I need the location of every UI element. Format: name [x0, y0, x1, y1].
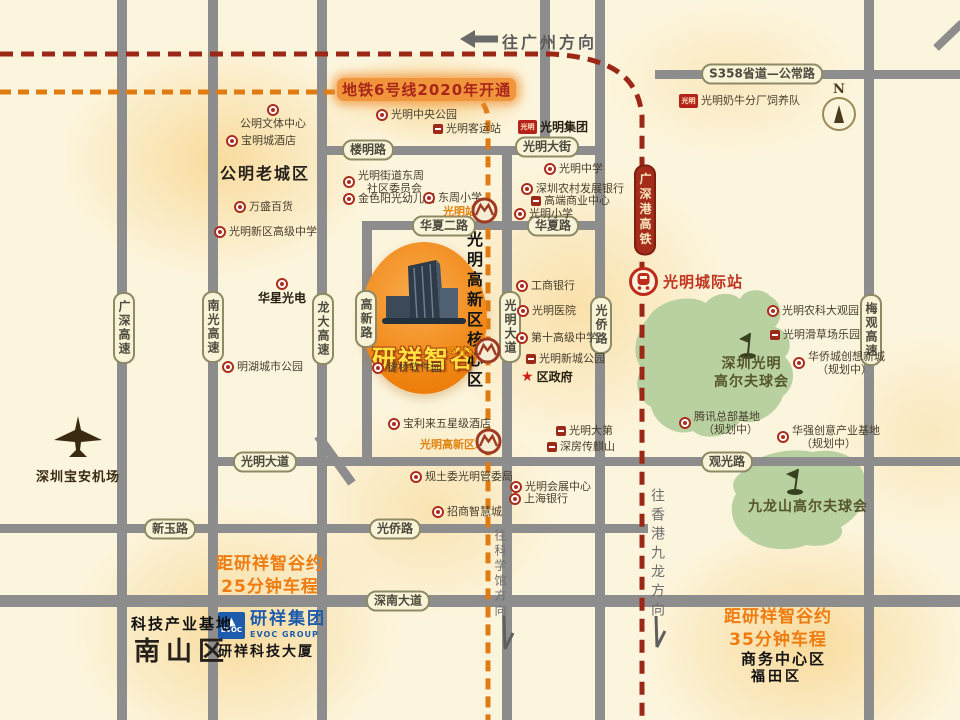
- road-label: 高新路: [355, 290, 377, 348]
- poi-label: 工商银行: [531, 279, 575, 292]
- golf-club-jiulongshan-label: 九龙山高尔夫球会: [748, 499, 868, 517]
- poi-marker: 光明光明集团: [518, 120, 588, 134]
- poi-label: 腾讯总部基地（规划中）: [694, 410, 760, 436]
- map-canvas: 研祥智谷 光明高新区核心区 地铁6号线2020年开通 光明城际站 深圳光明 高尔…: [0, 0, 960, 720]
- map-text: 往广州方向: [502, 29, 597, 53]
- road-label: 光侨路: [590, 296, 612, 354]
- poi-label: 光明农科大观园: [782, 304, 859, 317]
- poi-dot-icon: [214, 226, 226, 238]
- poi-marker: 规土委光明管委局: [410, 470, 513, 483]
- poi-dot-icon: [234, 201, 246, 213]
- road-label: 光明大道: [499, 291, 521, 363]
- poi-square-icon: [526, 354, 536, 364]
- poi-label: 宝明城酒店: [241, 134, 296, 147]
- map-text: 公明老城区: [220, 160, 310, 184]
- compass-needle-icon: [834, 105, 844, 123]
- poi-marker: 光明大第: [556, 424, 613, 437]
- road-label: 新玉路: [144, 519, 196, 540]
- poi-label: 键桥软件园: [387, 361, 442, 374]
- poi-marker: 键桥软件园: [372, 361, 442, 374]
- evoc-tower-label: 研祥科技大厦: [218, 641, 314, 661]
- poi-dot-icon: [423, 192, 435, 204]
- map-text: 福田区: [751, 666, 802, 686]
- metro-station-icon: [474, 337, 501, 364]
- evoc-group-logo-block: ▲ EVOC 研祥集团 EVOC GROUP: [218, 611, 326, 639]
- poi-marker: 光明滑草场乐园: [770, 328, 860, 341]
- poi-marker: 招商智慧城: [432, 505, 502, 518]
- poi-marker: ★区政府: [521, 370, 573, 384]
- metro-line6-note: 地铁6号线2020年开通: [337, 78, 516, 101]
- poi-dot-icon: [679, 417, 691, 429]
- poi-dot-icon: [376, 109, 388, 121]
- poi-label: 高端商业中心: [544, 194, 610, 207]
- poi-label: 光明新城公园: [539, 352, 605, 365]
- evoc-group-en: EVOC GROUP: [250, 630, 326, 639]
- poi-marker: 工商银行: [516, 279, 575, 292]
- poi-dot-icon: [410, 471, 422, 483]
- poi-square-icon: [770, 330, 780, 340]
- core-zone-label: 光明高新区核心区: [461, 231, 485, 391]
- poi-square-icon: [531, 196, 541, 206]
- poi-dot-icon: [343, 193, 355, 205]
- poi-label: 光明大第: [569, 424, 613, 437]
- poi-label: 上海银行: [524, 492, 568, 505]
- government-star-icon: ★: [521, 371, 534, 383]
- poi-dot-icon: [514, 208, 526, 220]
- poi-dot-icon: [517, 305, 529, 317]
- poi-marker: 光明小学: [514, 207, 573, 220]
- poi-marker: 光明中学: [544, 162, 603, 175]
- poi-marker: 腾讯总部基地（规划中）: [679, 410, 760, 436]
- road-label: 楼明路: [342, 140, 394, 161]
- poi-label: 光明中央公园: [391, 108, 457, 121]
- road-label: 光明大街: [515, 137, 579, 158]
- poi-marker: 光明新城公园: [526, 352, 605, 365]
- poi-dot-icon: [793, 357, 805, 369]
- road-label: 广深高速: [113, 292, 135, 364]
- poi-dot-icon: [509, 493, 521, 505]
- poi-marker: 光明中央公园: [376, 108, 457, 121]
- poi-square-icon: [556, 426, 566, 436]
- metro-station-icon: [475, 428, 502, 455]
- golf-flag-icon: [782, 466, 808, 496]
- poi-marker: 金色阳光幼儿园: [343, 192, 435, 205]
- railway-station-icon: [628, 266, 659, 297]
- map-text: 距研祥智谷约25分钟车程: [216, 553, 324, 599]
- poi-marker: 华星光电: [258, 278, 306, 305]
- poi-dot-icon: [510, 481, 522, 493]
- poi-dot-icon: [516, 280, 528, 292]
- poi-label: 华侨城创想新城（规划中）: [808, 350, 885, 376]
- metro-station-icon: [471, 197, 498, 224]
- poi-dot-icon: [343, 176, 355, 188]
- poi-square-icon: [547, 442, 557, 452]
- poi-marker: 宝明城酒店: [226, 134, 296, 147]
- evoc-group-cn: 研祥集团: [250, 611, 326, 628]
- poi-marker: 华侨城创想新城（规划中）: [793, 350, 885, 376]
- poi-dot-icon: [544, 163, 556, 175]
- poi-label: 光明客运站: [446, 122, 501, 135]
- poi-dot-icon: [432, 506, 444, 518]
- brand-logo-icon: 光明: [518, 120, 537, 134]
- poi-marker: 光明新区高级中学: [214, 225, 317, 238]
- poi-label: 光明集团: [540, 120, 588, 134]
- compass: N: [822, 82, 856, 131]
- poi-label: 光明奶牛分厂饲养队: [701, 94, 800, 107]
- airport-block: 深圳宝安机场: [36, 414, 120, 485]
- intercity-station-label: 光明城际站: [663, 271, 743, 292]
- poi-label: 第十高级中学: [531, 331, 597, 344]
- poi-marker: 光明光明奶牛分厂饲养队: [679, 94, 800, 108]
- map-text: 往香港九龙方向: [647, 488, 667, 621]
- road-label: 南光高速: [202, 291, 224, 363]
- road-label: 观光路: [701, 452, 753, 473]
- poi-dot-icon: [516, 332, 528, 344]
- poi-marker: 光明客运站: [433, 122, 501, 135]
- map-text: 距研祥智谷约35分钟车程: [724, 606, 832, 652]
- poi-label: 招商智慧城: [447, 505, 502, 518]
- poi-label: 光明医院: [532, 304, 576, 317]
- poi-marker: 公明文体中心: [240, 104, 306, 130]
- golf-club-guangming-label: 深圳光明 高尔夫球会: [714, 356, 789, 391]
- road: [502, 146, 512, 720]
- poi-marker: 第十高级中学: [516, 331, 597, 344]
- poi-marker: 上海银行: [509, 492, 568, 505]
- road-label: 深南大道: [366, 591, 430, 612]
- poi-label: 光明小学: [529, 207, 573, 220]
- airport-label: 深圳宝安机场: [36, 466, 120, 485]
- intercity-station: 光明城际站: [628, 266, 743, 297]
- poi-marker: 深房传麒山: [547, 440, 615, 453]
- poi-label: 华强创意产业基地（规划中）: [792, 424, 880, 450]
- poi-dot-icon: [767, 305, 779, 317]
- poi-dot-icon: [521, 183, 533, 195]
- poi-dot-icon: [276, 278, 288, 290]
- map-text: 往科学馆方向: [492, 529, 509, 619]
- poi-marker: 华强创意产业基地（规划中）: [777, 424, 880, 450]
- map-glow: [300, 400, 560, 620]
- poi-dot-icon: [777, 431, 789, 443]
- brand-logo-icon: 光明: [679, 94, 698, 108]
- airplane-icon: [50, 414, 106, 460]
- road-label: 光侨路: [369, 519, 421, 540]
- poi-label: 规土委光明管委局: [425, 470, 513, 483]
- rail-label: 广深港高铁: [634, 165, 656, 256]
- poi-dot-icon: [372, 362, 384, 374]
- road-label: S358省道—公常路: [701, 64, 823, 85]
- poi-marker: 高端商业中心: [531, 194, 610, 207]
- arrow-left-guangzhou: [460, 30, 498, 48]
- poi-label: 区政府: [537, 370, 573, 384]
- poi-dot-icon: [388, 418, 400, 430]
- poi-label: 华星光电: [258, 291, 306, 305]
- poi-label: 光明滑草场乐园: [783, 328, 860, 341]
- poi-marker: 明湖城市公园: [222, 360, 303, 373]
- poi-label: 万盛百货: [249, 200, 293, 213]
- road-label: 龙大高速: [312, 293, 334, 365]
- poi-dot-icon: [267, 104, 279, 116]
- poi-marker: 光明医院: [517, 304, 576, 317]
- compass-ring: [822, 97, 856, 131]
- poi-square-icon: [433, 124, 443, 134]
- poi-label: 明湖城市公园: [237, 360, 303, 373]
- poi-label: 深房传麒山: [560, 440, 615, 453]
- poi-marker: 万盛百货: [234, 200, 293, 213]
- poi-marker: 光明农科大观园: [767, 304, 859, 317]
- poi-label: 公明文体中心: [240, 117, 306, 130]
- poi-dot-icon: [222, 361, 234, 373]
- map-text: 南山区: [134, 631, 230, 668]
- compass-n-label: N: [822, 82, 856, 97]
- poi-label: 光明新区高级中学: [229, 225, 317, 238]
- poi-dot-icon: [226, 135, 238, 147]
- road-diagonal: [936, 23, 960, 48]
- poi-label: 光明中学: [559, 162, 603, 175]
- road-label: 光明大道: [233, 452, 297, 473]
